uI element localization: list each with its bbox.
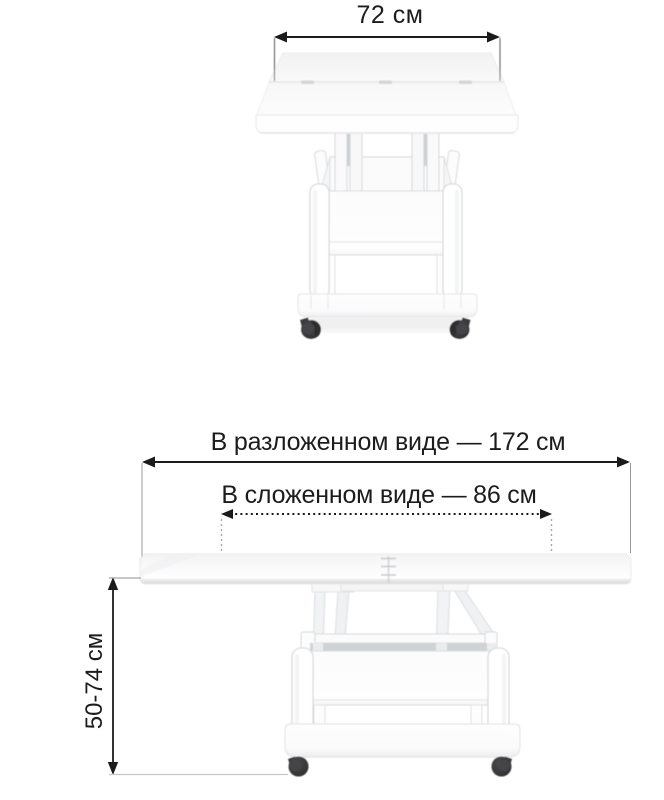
svg-text:72 см: 72 см [357,1,424,29]
svg-text:В сложенном виде — 86 см: В сложенном виде — 86 см [221,481,536,509]
svg-text:50-74 см: 50-74 см [81,633,108,730]
svg-text:В разложенном виде — 172 см: В разложенном виде — 172 см [211,428,566,456]
